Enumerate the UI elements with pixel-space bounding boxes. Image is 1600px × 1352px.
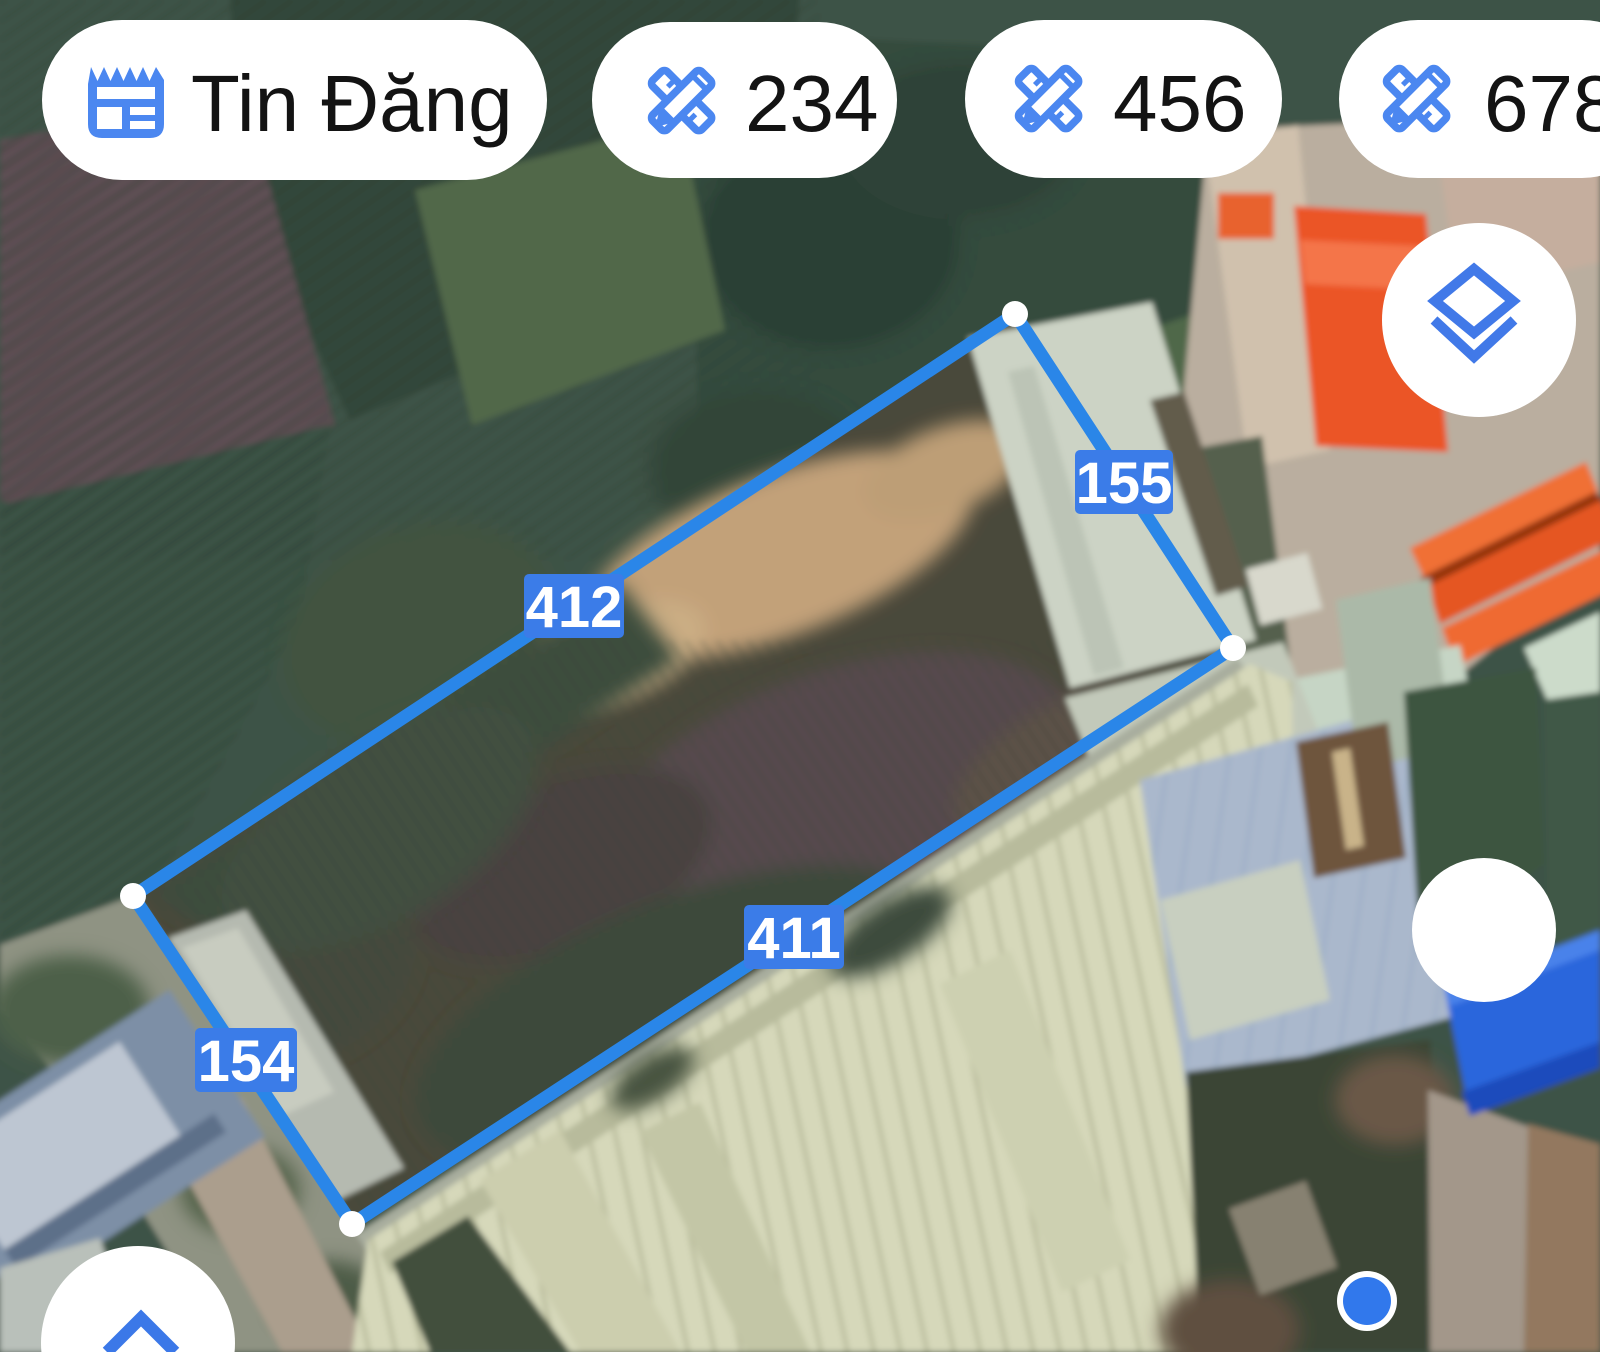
svg-text:154: 154 (198, 1029, 295, 1094)
svg-text:412: 412 (526, 575, 623, 640)
svg-text:678: 678 (1484, 59, 1600, 148)
svg-text:Tin Đăng: Tin Đăng (191, 59, 513, 148)
svg-text:456: 456 (1113, 59, 1246, 148)
svg-text:155: 155 (1076, 451, 1173, 516)
svg-text:234: 234 (745, 59, 878, 148)
svg-text:411: 411 (747, 906, 841, 971)
